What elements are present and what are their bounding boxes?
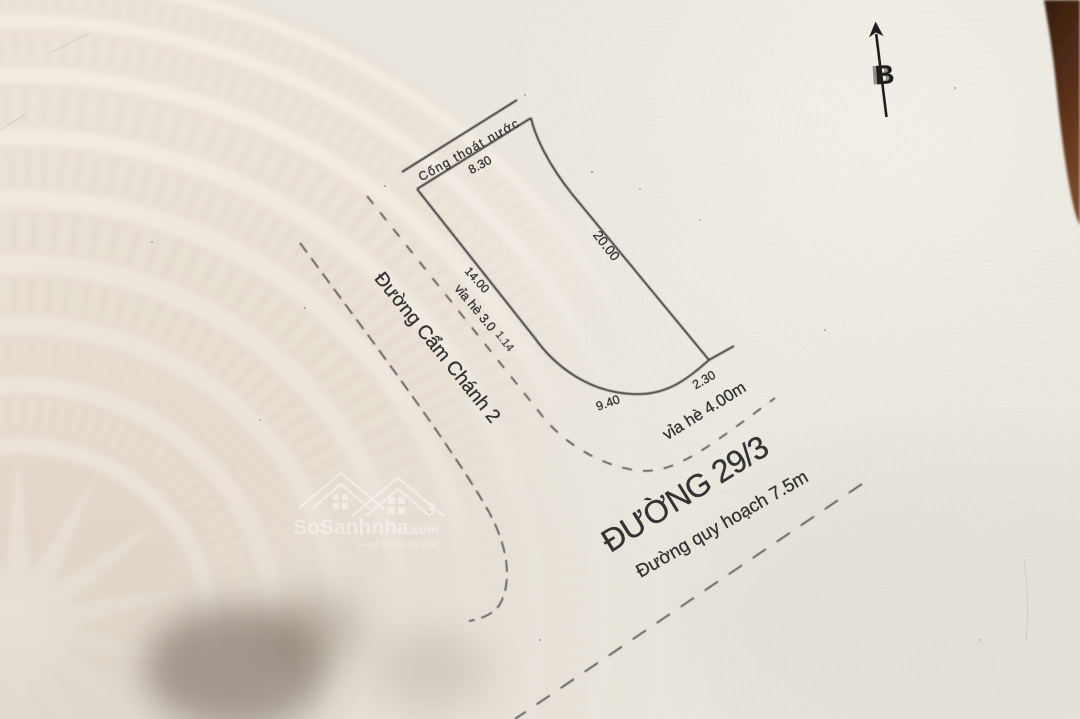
svg-text:Great choice for you: Great choice for you <box>355 539 436 549</box>
svg-text:B: B <box>874 59 896 90</box>
